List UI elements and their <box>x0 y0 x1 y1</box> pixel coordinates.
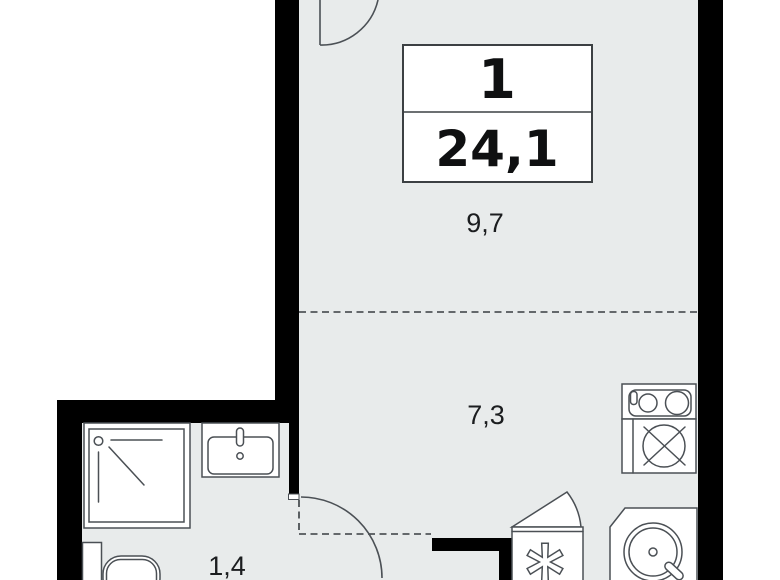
wall-bathroom-right <box>289 423 299 494</box>
living-area-label: 9,7 <box>466 208 504 238</box>
unit-total-area: 24,1 <box>435 120 558 178</box>
stove-two-burner <box>622 384 696 419</box>
wall-right <box>698 0 723 580</box>
shower-tray <box>84 423 190 528</box>
floor-plan: 1 24,1 9,7 7,3 1,4 <box>0 0 780 580</box>
sink-faucet-icon <box>237 428 244 446</box>
door-jamb <box>289 494 300 500</box>
washer-drum-center <box>649 548 657 556</box>
wall-left <box>275 0 299 423</box>
wall-entry-vertical <box>499 538 512 580</box>
unit-rooms-count: 1 <box>478 48 516 111</box>
burner-large-icon <box>666 392 689 415</box>
kitchen-sink <box>622 419 696 473</box>
bathroom-sink <box>202 423 279 477</box>
unit-label-box: 1 24,1 <box>403 45 592 182</box>
floor-plan-svg: 1 24,1 9,7 7,3 1,4 <box>0 0 780 580</box>
shower-inner <box>89 429 184 522</box>
wall-bathroom-left <box>57 400 82 580</box>
toilet-bowl-inner <box>107 560 157 580</box>
toilet-tank <box>83 543 102 580</box>
burner-small-icon <box>639 394 657 412</box>
hall-area-label: 1,4 <box>208 551 246 580</box>
stove-knob-icon <box>631 392 638 405</box>
sink-drain-icon <box>237 453 243 459</box>
wall-bathroom-top <box>57 400 299 423</box>
kitchen-area-label: 7,3 <box>467 400 505 430</box>
shower-drain-icon <box>94 437 103 446</box>
washing-machine <box>610 508 697 580</box>
